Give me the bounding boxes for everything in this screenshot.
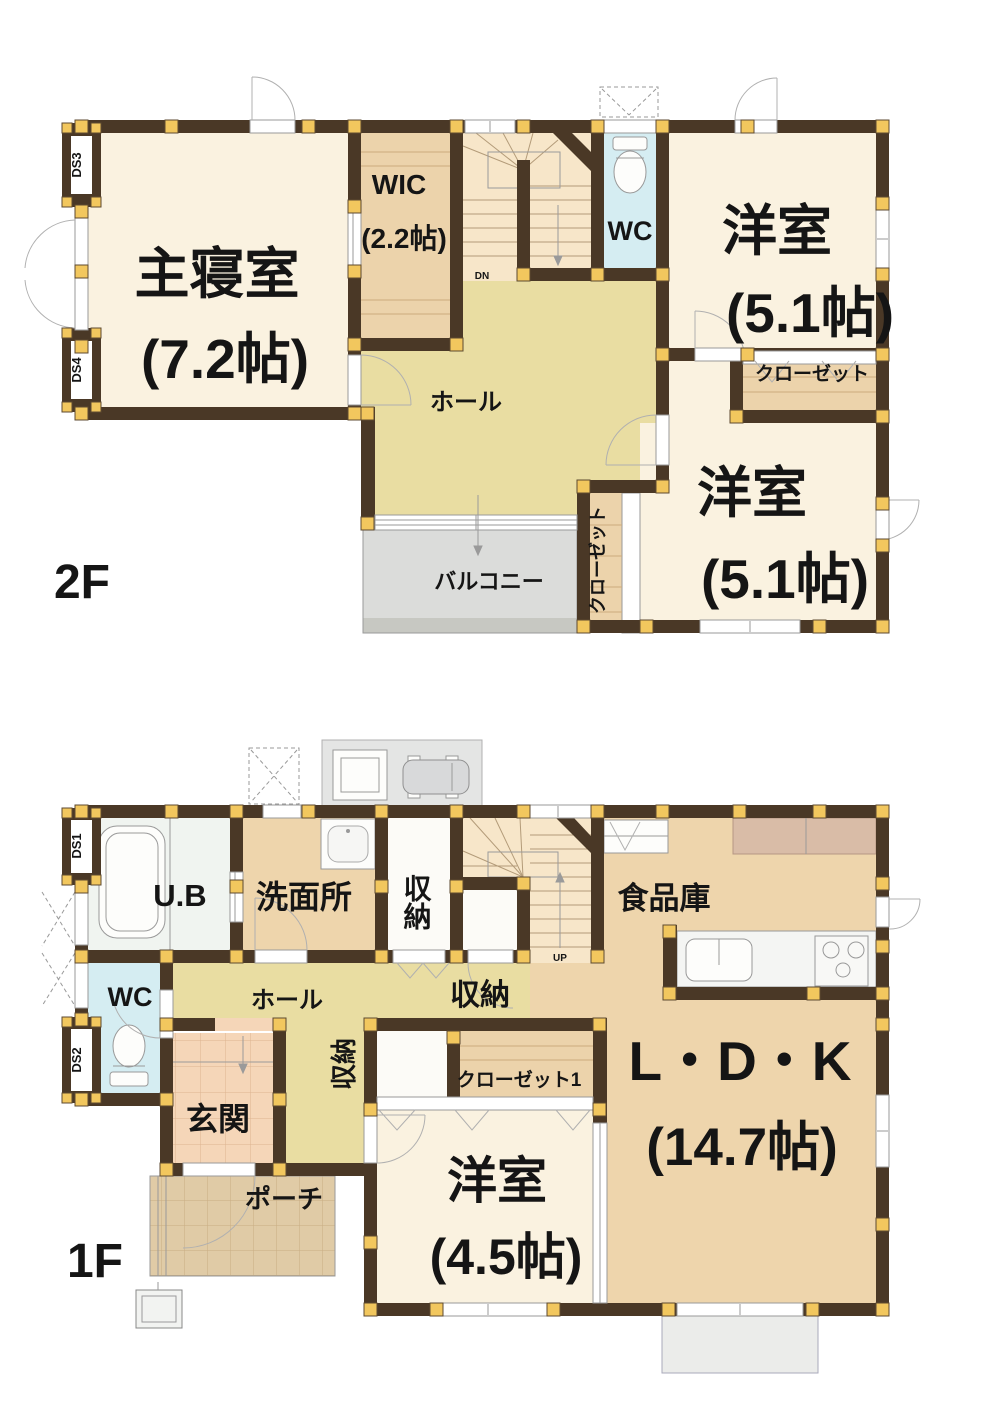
label-ldk-size: (14.7帖) xyxy=(646,1118,837,1177)
kitchen-cupboard xyxy=(733,818,876,854)
label-master-bedroom-size: (7.2帖) xyxy=(141,328,309,390)
label-up: UP xyxy=(553,953,567,964)
entrance-opening xyxy=(215,1018,273,1031)
outdoor-sink-icon xyxy=(136,1282,182,1328)
label-master-bedroom: 主寝室 xyxy=(134,243,299,305)
label-floor-2f: 2F xyxy=(54,556,110,609)
label-dn: DN xyxy=(475,271,489,282)
label-ldk: L・D・K xyxy=(628,1030,851,1092)
label-bedroom-ne-size: (5.1帖) xyxy=(726,282,894,344)
label-floor-1f: 1F xyxy=(67,1235,123,1288)
label-ds4: DS4 xyxy=(69,357,84,383)
label-unit-bath: U.B xyxy=(153,878,206,913)
label-hall-1f: ホール xyxy=(251,987,323,1014)
water-heater-icon xyxy=(333,750,387,800)
label-storage-w: 収納 xyxy=(329,1038,359,1090)
label-bedroom-1f: 洋室 xyxy=(447,1153,547,1209)
label-ds2: DS2 xyxy=(69,1047,84,1072)
label-wc-1f: WC xyxy=(108,982,153,1012)
floor-plan-1f: U.B 洗面所 収納 WC ホール 収納 食品庫 L・D・K (14.7帖) ク… xyxy=(42,740,920,1373)
label-wc-2f: WC xyxy=(608,216,653,246)
floor-plan-2f: 主寝室 (7.2帖) WIC (2.2帖) WC 洋室 (5.1帖) クローゼッ… xyxy=(25,77,919,633)
washbasin-icon xyxy=(321,819,375,869)
stove-icon xyxy=(815,936,868,986)
balcony-edge xyxy=(363,618,577,633)
toilet-icon xyxy=(613,137,647,193)
label-entrance: 玄関 xyxy=(186,1101,250,1137)
room-storage-w xyxy=(377,1031,447,1097)
kitchen-counter xyxy=(677,931,876,987)
floorplan-drawing: 主寝室 (7.2帖) WIC (2.2帖) WC 洋室 (5.1帖) クローゼッ… xyxy=(0,0,1000,1412)
floorplan-page: 主寝室 (7.2帖) WIC (2.2帖) WC 洋室 (5.1帖) クローゼッ… xyxy=(0,0,1000,1412)
label-balcony: バルコニー xyxy=(434,569,544,594)
closet-sw-sliding-door xyxy=(622,493,640,633)
label-closet-ne: クローゼット xyxy=(755,362,869,385)
label-washroom: 洗面所 xyxy=(256,879,352,915)
label-hall-2f: ホール xyxy=(430,389,502,416)
label-bedroom-ne: 洋室 xyxy=(722,200,832,262)
label-storage-n: 収納 xyxy=(401,874,432,930)
eave-window-mark xyxy=(249,748,299,804)
label-closet1: クローゼット1 xyxy=(457,1068,582,1091)
entrance-tile-grid xyxy=(173,1033,273,1163)
pantry-shelf-icon xyxy=(604,820,668,853)
label-pantry: 食品庫 xyxy=(618,881,711,916)
label-porch: ポーチ xyxy=(245,1184,323,1214)
label-bedroom-se-size: (5.1帖) xyxy=(701,548,869,610)
terrace xyxy=(662,1316,818,1373)
label-wic-size: (2.2帖) xyxy=(361,223,447,254)
car-icon xyxy=(403,756,469,798)
label-wic: WIC xyxy=(372,169,426,200)
toilet-icon-1f xyxy=(110,1025,148,1086)
label-ds1: DS1 xyxy=(69,833,84,858)
label-bedroom-1f-size: (4.5帖) xyxy=(430,1229,583,1285)
label-bedroom-se: 洋室 xyxy=(697,462,807,524)
label-storage-understairs: 収納 xyxy=(450,979,510,1012)
room-storage-understairs xyxy=(463,890,517,950)
label-closet-sw: クローゼット xyxy=(587,506,608,614)
label-ds3: DS3 xyxy=(69,152,84,177)
